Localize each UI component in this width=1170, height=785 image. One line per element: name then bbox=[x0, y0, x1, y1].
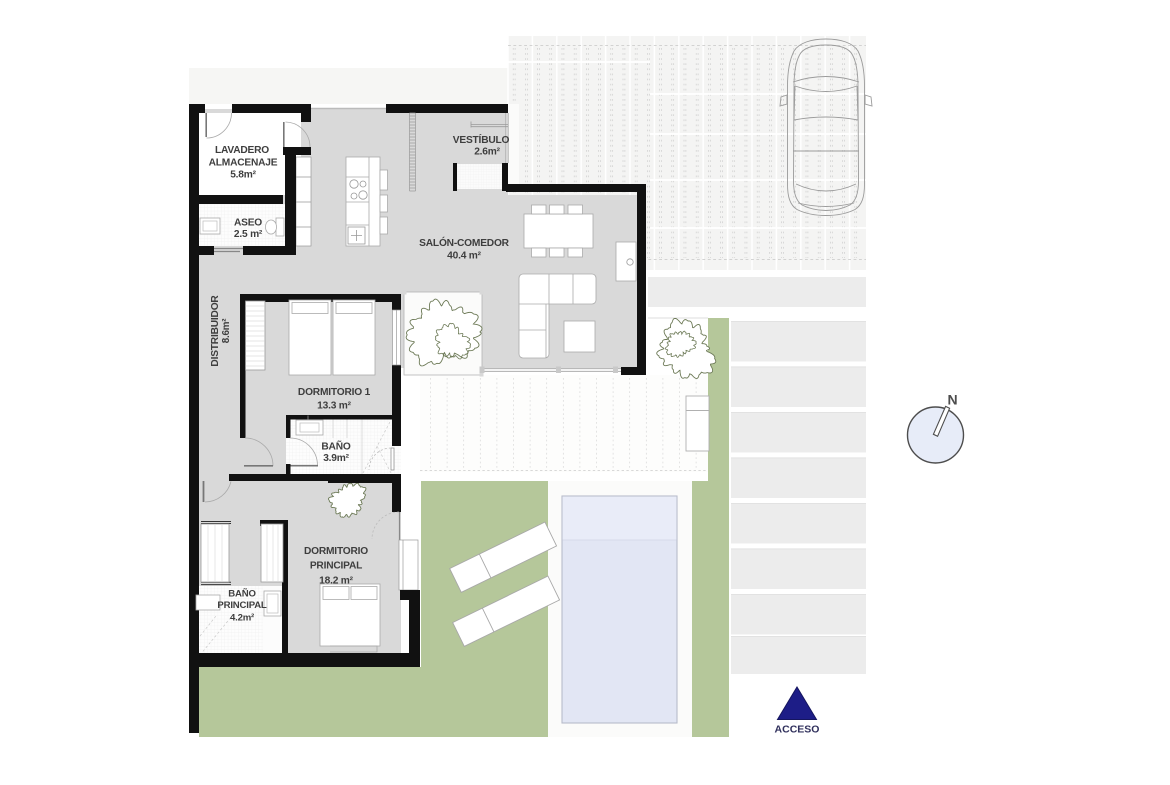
svg-text:2.6m²: 2.6m² bbox=[474, 147, 500, 158]
svg-text:BAÑO: BAÑO bbox=[321, 440, 350, 453]
svg-text:ACCESO: ACCESO bbox=[775, 724, 820, 736]
svg-text:ALMACENAJE: ALMACENAJE bbox=[209, 158, 278, 169]
svg-text:PRINCIPAL: PRINCIPAL bbox=[217, 600, 267, 611]
svg-text:40.4 m²: 40.4 m² bbox=[447, 251, 482, 262]
svg-text:DISTRIBUIDOR: DISTRIBUIDOR bbox=[210, 295, 221, 367]
svg-text:2.5 m²: 2.5 m² bbox=[234, 229, 263, 240]
svg-text:18.2 m²: 18.2 m² bbox=[319, 576, 354, 587]
svg-text:PRINCIPAL: PRINCIPAL bbox=[310, 561, 362, 572]
svg-text:5.8m²: 5.8m² bbox=[230, 170, 256, 181]
svg-text:3.9m²: 3.9m² bbox=[323, 453, 349, 464]
svg-text:4.2m²: 4.2m² bbox=[230, 613, 254, 624]
svg-text:DORMITORIO: DORMITORIO bbox=[304, 546, 368, 557]
svg-text:N: N bbox=[947, 392, 957, 408]
svg-text:SALÓN-COMEDOR: SALÓN-COMEDOR bbox=[419, 236, 509, 249]
svg-text:DORMITORIO 1: DORMITORIO 1 bbox=[298, 387, 371, 398]
svg-text:ASEO: ASEO bbox=[234, 218, 262, 229]
svg-text:LAVADERO: LAVADERO bbox=[215, 145, 269, 156]
svg-text:8.6m²: 8.6m² bbox=[221, 318, 232, 344]
svg-text:13.3 m²: 13.3 m² bbox=[317, 401, 352, 412]
svg-text:BAÑO: BAÑO bbox=[228, 589, 256, 600]
svg-text:VESTÍBULO: VESTÍBULO bbox=[453, 133, 510, 146]
